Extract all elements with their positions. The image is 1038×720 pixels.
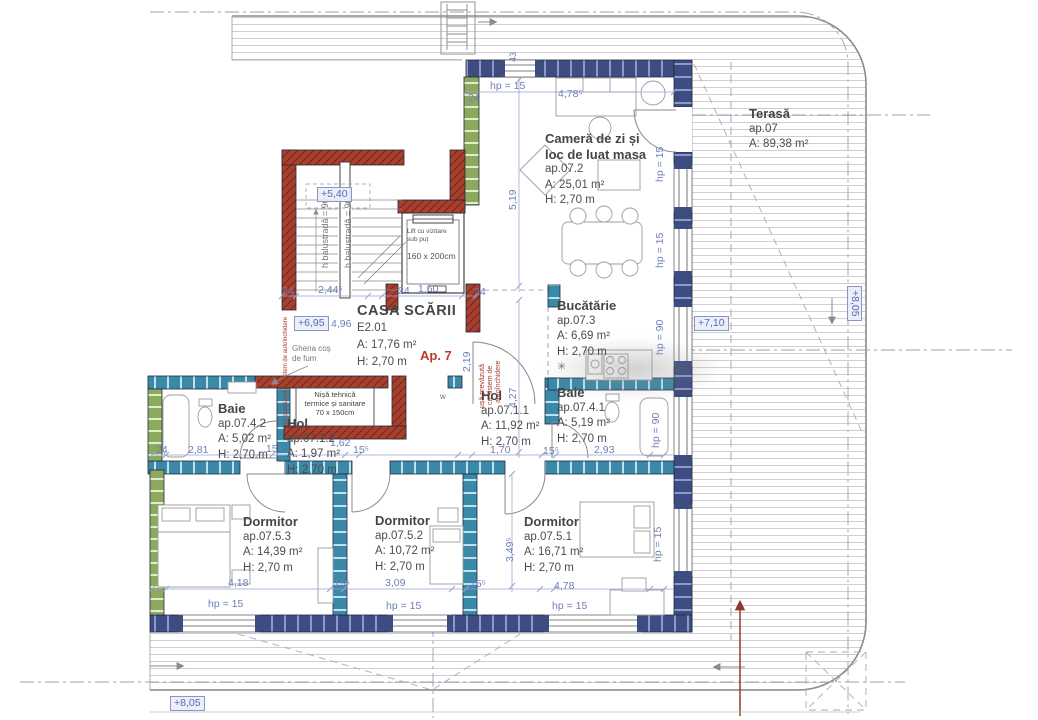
ghena-note: Ghena coș de fum xyxy=(292,344,331,364)
dim-label: 24 xyxy=(468,92,480,104)
lift-note-line: Lift cu vizitare xyxy=(407,228,459,236)
room-terasa: Terasă ap.07 A: 89,38 m² xyxy=(749,106,808,153)
dim-label: 3,09 xyxy=(385,577,405,589)
dim-label: 15⁵ xyxy=(334,578,350,590)
room-area: A: 14,39 m² xyxy=(243,545,302,561)
room-height: H: 2,70 m xyxy=(218,448,271,464)
dim-label: 4,96 xyxy=(331,318,351,330)
level-marker: +5,40 xyxy=(317,187,352,202)
room-dormitor-1: Dormitor ap.07.5.1 A: 16,71 m² H: 2,70 m xyxy=(524,514,583,576)
room-unit: ap.07.5.3 xyxy=(243,530,302,546)
room-bucatarie: Bucătărie ap.07.3 A: 6,69 m² H: 2,70 m xyxy=(557,298,616,360)
room-name: Bucătărie xyxy=(557,298,616,314)
ghena-line: Ghena coș xyxy=(292,344,331,354)
dim-label: hp = 90 xyxy=(650,413,662,448)
washer-symbol: w xyxy=(440,392,446,401)
nisa-note: Nișă tehnică termice și sanitare 70 x 15… xyxy=(298,390,372,417)
room-name: loc de luat masa xyxy=(545,147,646,163)
room-area: A: 11,92 m² xyxy=(481,419,540,435)
dim-label: 4,27 xyxy=(507,388,519,408)
balustrade-note: h balustradă = 90 xyxy=(320,198,330,268)
dim-label: hp = 15 xyxy=(490,80,525,92)
room-name: CASA SCĂRII xyxy=(357,303,456,320)
level-marker: +6,95 xyxy=(294,316,329,331)
dim-label: hp = 15 xyxy=(386,600,421,612)
room-name: Terasă xyxy=(749,106,808,122)
dim-label: hp = 15 xyxy=(652,527,664,562)
dim-label: 24 xyxy=(474,286,486,298)
room-height: H: 2,70 m xyxy=(557,345,616,361)
floor-plan-drawing xyxy=(0,0,1038,720)
room-unit: ap.07 xyxy=(749,122,808,138)
level-marker: +8,05 xyxy=(170,696,205,711)
room-unit: ap.07.5.2 xyxy=(375,529,434,545)
dim-label: hp = 15 xyxy=(208,598,243,610)
room-living: Cameră de zi și loc de luat masa ap.07.2… xyxy=(545,131,646,209)
room-area: A: 89,38 m² xyxy=(749,137,808,153)
room-area: A: 6,69 m² xyxy=(557,329,616,345)
dim-label: 1,62 xyxy=(330,437,350,449)
door-note-line: ușă prevăzută xyxy=(479,364,486,408)
lift-note: Lift cu vizitare sub puț 160 x 200cm xyxy=(407,228,459,260)
dim-label: 15⁵ xyxy=(470,578,486,590)
dim-label: hp = 15 xyxy=(654,233,666,268)
lift-size: 160 x 200cm xyxy=(407,252,459,260)
room-dormitor-3: Dormitor ap.07.5.3 A: 14,39 m² H: 2,70 m xyxy=(243,514,302,576)
room-unit: ap.07.3 xyxy=(557,314,616,330)
dim-label: 15⁵ xyxy=(266,443,282,455)
room-height: H: 2,70 m xyxy=(375,560,434,576)
room-name: Dormitor xyxy=(524,514,583,530)
door-note-line: autoînchidere xyxy=(495,361,502,403)
dim-label: 4,78⁵ xyxy=(558,88,583,100)
room-name: Dormitor xyxy=(375,513,434,529)
room-area: A: 1,97 m² xyxy=(287,447,340,463)
dim-label: 5,19 xyxy=(507,190,519,210)
dim-label: 4,18 xyxy=(228,577,248,589)
door-note-vertical: ușă prevăzută cu sistem de autoînchidere xyxy=(283,317,289,428)
room-name: Dormitor xyxy=(243,514,302,530)
room-unit: ap.07.4.1 xyxy=(557,401,610,417)
room-area: A: 5,02 m² xyxy=(218,432,271,448)
ghena-line: de fum xyxy=(292,354,331,364)
dim-label: 2,19 xyxy=(461,352,473,372)
room-area: A: 25,01 m² xyxy=(545,178,646,194)
dim-label: 2,44⁵ xyxy=(318,284,343,296)
nisa-line: termice și sanitare xyxy=(298,399,372,408)
room-area: A: 16,71 m² xyxy=(524,545,583,561)
dim-label: 2,93 xyxy=(594,444,614,456)
room-name: Baie xyxy=(218,401,271,417)
fridge-symbol: ✳ xyxy=(557,360,566,373)
room-area: A: 5,19 m² xyxy=(557,416,610,432)
dim-label: 4,78 xyxy=(554,580,574,592)
room-baie-mare: Baie ap.07.4.1 A: 5,19 m² H: 2,70 m xyxy=(557,385,610,447)
door-note-line: cu sistem de xyxy=(487,366,494,405)
lift-note-line: sub puț xyxy=(407,236,459,244)
dim-label: 15⁵ xyxy=(353,444,369,456)
nisa-size: 70 x 150cm xyxy=(298,408,372,417)
room-name: Hol xyxy=(287,416,340,432)
dim-label: 15⁵ xyxy=(543,445,559,457)
dim-label: 1,70 xyxy=(490,444,510,456)
room-unit: ap.07.5.1 xyxy=(524,530,583,546)
dim-label: 1,60 xyxy=(418,283,438,295)
dim-label: hp = 90 xyxy=(654,320,666,355)
room-unit: ap.07.2 xyxy=(545,162,646,178)
room-unit: E2.01 xyxy=(357,320,456,337)
room-height: H: 2,70 m xyxy=(545,193,646,209)
dim-label: 24 xyxy=(398,285,410,297)
room-unit: ap.07.4.2 xyxy=(218,417,271,433)
room-dormitor-2: Dormitor ap.07.5.2 A: 10,72 m² H: 2,70 m xyxy=(375,513,434,575)
room-baie-mica: Baie ap.07.4.2 A: 5,02 m² H: 2,70 m xyxy=(218,401,271,463)
apartment-number-label: Ap. 7 xyxy=(420,348,452,363)
dim-label: 2,81 xyxy=(188,444,208,456)
dim-label: 43 xyxy=(508,52,518,62)
room-height: H: 2,70 m xyxy=(287,463,340,479)
dim-label: hp = 15 xyxy=(552,600,587,612)
nisa-line: Nișă tehnică xyxy=(298,390,372,399)
room-name: Cameră de zi și xyxy=(545,131,646,147)
level-marker: +8,05 xyxy=(847,286,862,321)
floor-plan: Cameră de zi și loc de luat masa ap.07.2… xyxy=(0,0,1038,720)
level-marker: +7,10 xyxy=(694,316,729,331)
room-name: Baie xyxy=(557,385,610,401)
balustrade-note: h balustradă = 90 xyxy=(343,198,353,268)
room-height: H: 2,70 m xyxy=(524,561,583,577)
room-area: A: 10,72 m² xyxy=(375,544,434,560)
dim-label: 24 xyxy=(282,285,294,297)
dim-label: 3,49⁵ xyxy=(504,537,516,562)
room-height: H: 2,70 m xyxy=(243,561,302,577)
dim-label: 24 xyxy=(156,444,168,456)
dim-label: hp = 15 xyxy=(654,147,666,182)
